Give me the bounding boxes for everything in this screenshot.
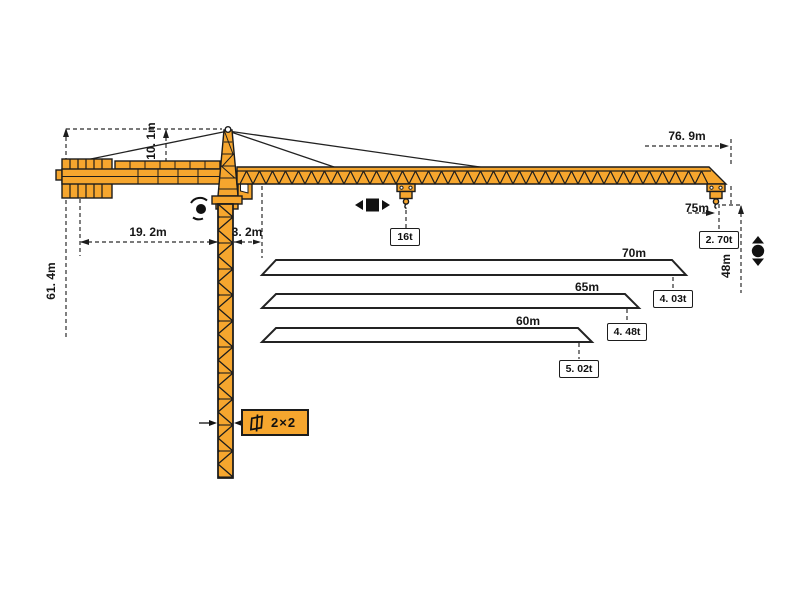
hoisting-icon (752, 236, 764, 266)
slewing-icon (191, 198, 207, 219)
apex-pulley (225, 127, 231, 133)
max-load-box: 16t (390, 228, 420, 246)
mast-section-label: 2×2 (271, 415, 296, 430)
jib-option-length-60: 60m (508, 315, 548, 327)
tip-load-box: 2. 70t (699, 231, 739, 249)
jib-option-length-65: 65m (567, 281, 607, 293)
crane-mast (218, 204, 233, 478)
dim-overall-reach: 76. 9m (657, 130, 717, 142)
jib-option-length-70: 70m (614, 247, 654, 259)
dim-jib-root-offset: 3. 2m (222, 226, 272, 238)
crane-diagram-page: 61. 4m 10. 1m 19. 2m 3. 2m 76. 9m 75m 48… (0, 0, 800, 600)
tower-head (218, 127, 238, 196)
dim-total-height: 61. 4m (45, 251, 59, 311)
counter-jib (56, 159, 222, 198)
capacity-box-65m: 4. 48t (607, 323, 647, 341)
dim-max-radius: 75m (682, 202, 712, 214)
mast-section-icon (249, 413, 266, 433)
dim-tower-head-height: 10. 1m (145, 111, 159, 171)
trolley-hook-mid (397, 184, 415, 209)
jib-bar-65m (262, 294, 639, 308)
dim-counter-jib-length: 19. 2m (118, 226, 178, 238)
trolley-travel-icon (355, 199, 390, 212)
mast-section-box: 2×2 (241, 409, 309, 436)
jib-bar-60m (262, 328, 592, 342)
crane-jib (237, 167, 726, 184)
counter-jib-rail (115, 161, 220, 169)
jib-bar-70m (262, 260, 686, 275)
capacity-box-70m: 4. 03t (653, 290, 693, 308)
capacity-box-60m: 5. 02t (559, 360, 599, 378)
slewing-platform (212, 196, 242, 204)
